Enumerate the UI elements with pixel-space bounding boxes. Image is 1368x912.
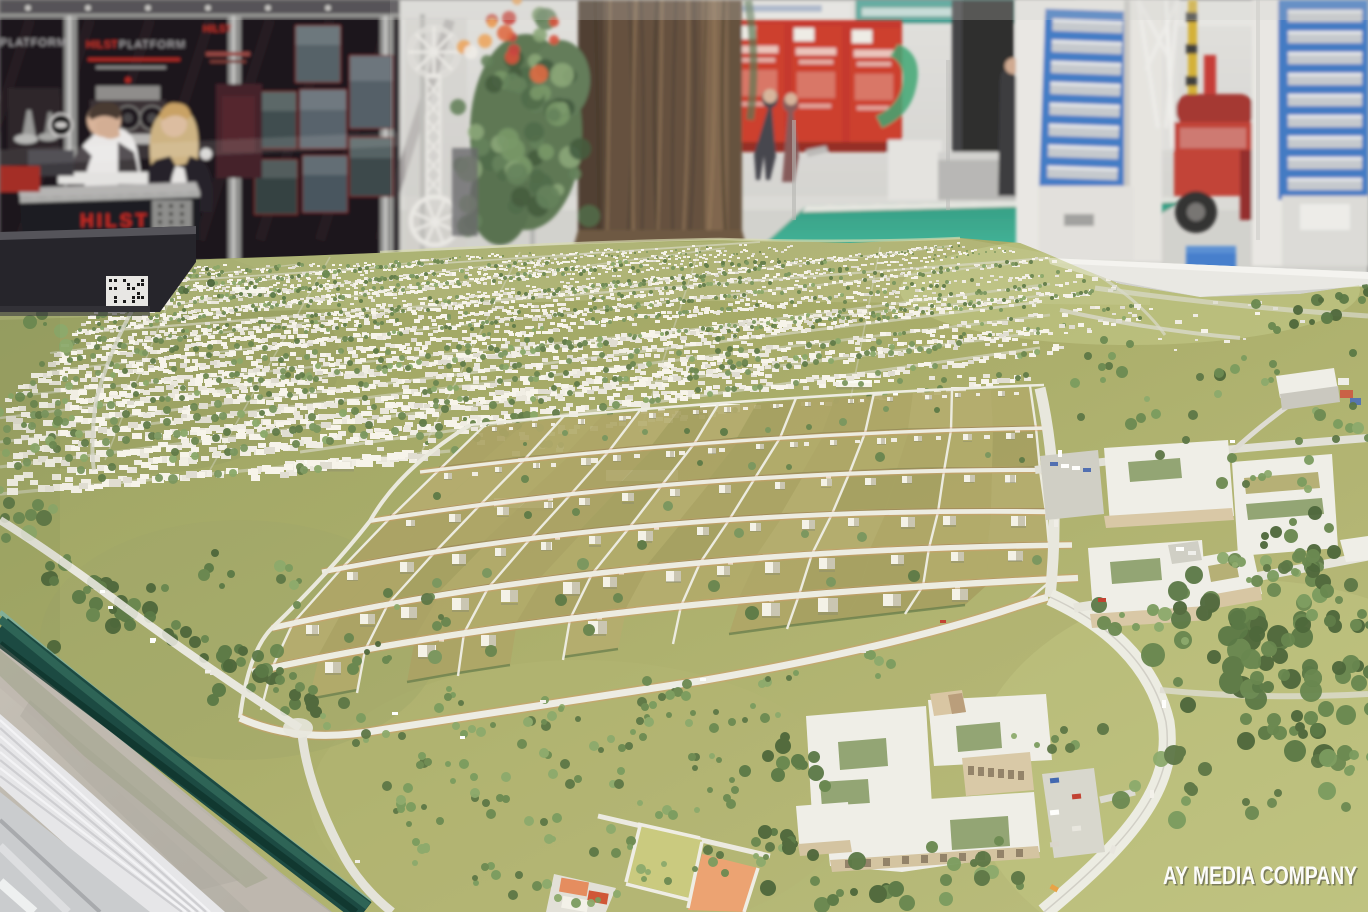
svg-text:HILST: HILST: [203, 24, 232, 35]
svg-text:PLATFORM: PLATFORM: [119, 39, 186, 51]
svg-text:HILST: HILST: [86, 39, 118, 51]
svg-text:AY MEDIA COMPANY: AY MEDIA COMPANY: [1163, 862, 1357, 890]
svg-text:PLATFORM: PLATFORM: [0, 37, 67, 49]
